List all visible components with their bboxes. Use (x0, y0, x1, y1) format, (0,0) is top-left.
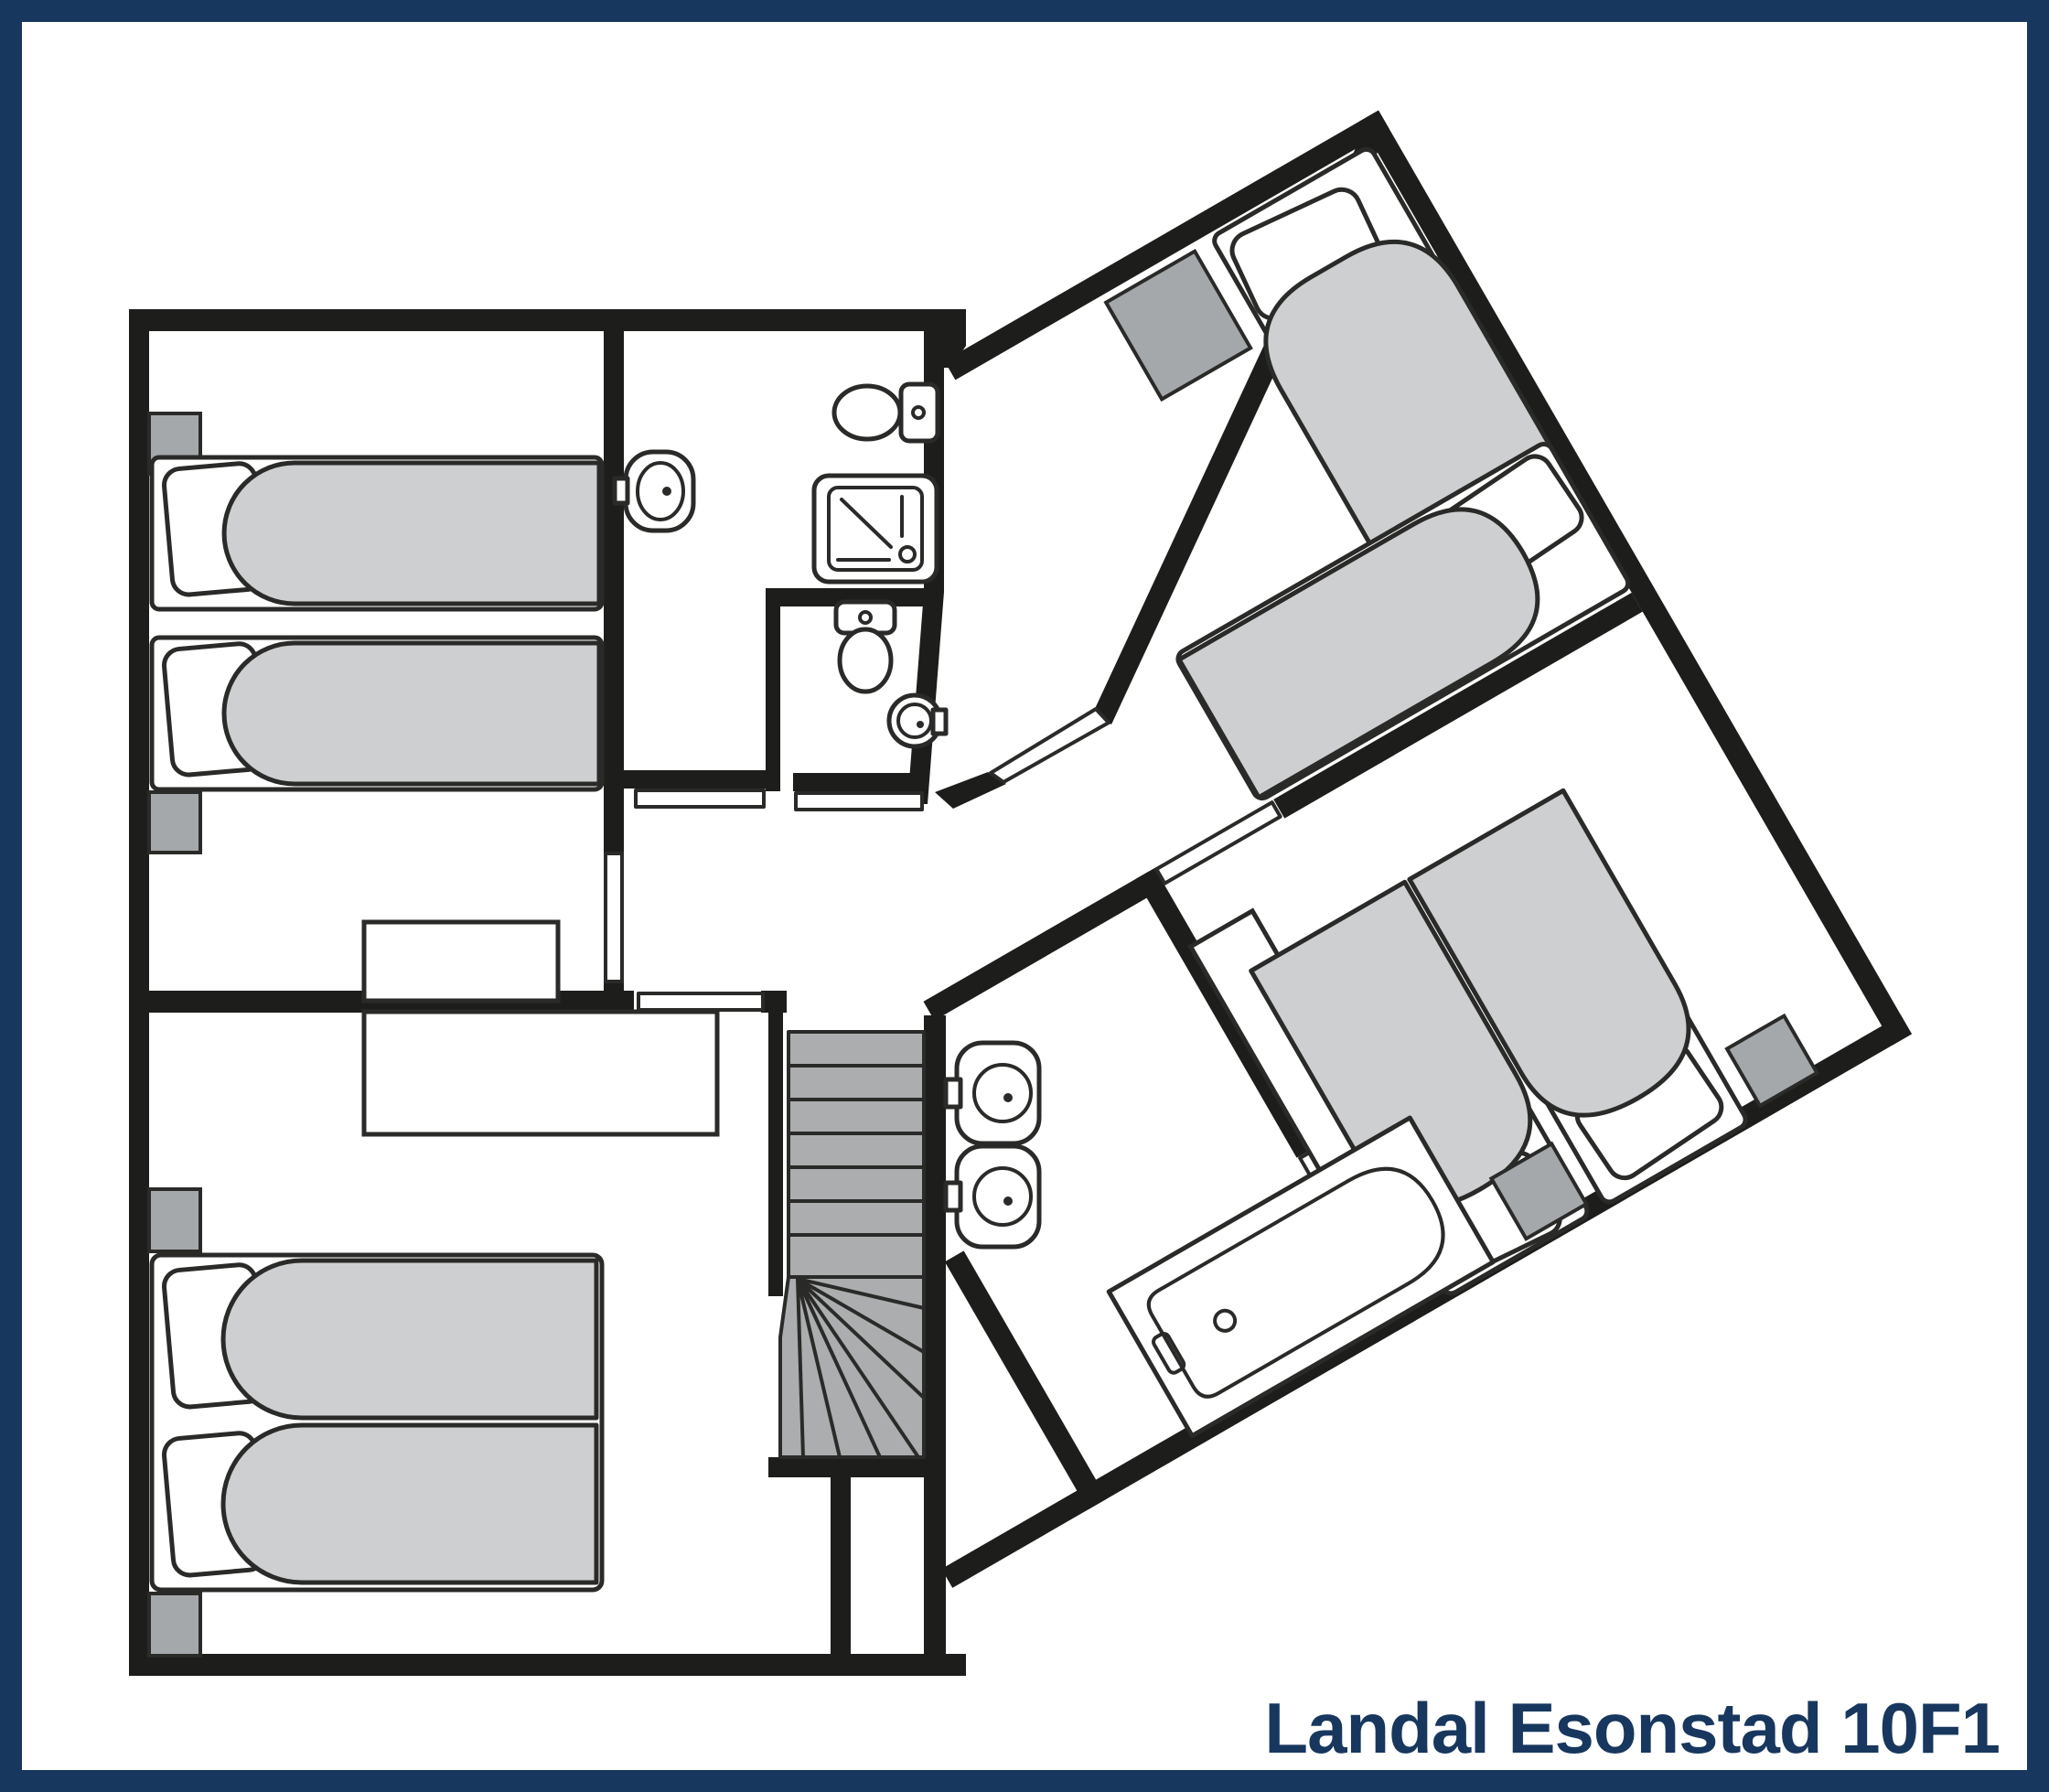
wall-stair-bottom (768, 1457, 946, 1477)
wall-wc-left (766, 588, 780, 791)
cabinet (364, 922, 558, 1001)
sink-icon (889, 695, 946, 746)
bedroom-top-left (149, 413, 602, 1001)
bathtub-icon (1109, 1118, 1493, 1436)
rotated-wing (419, 111, 1912, 1588)
sink-icon (946, 1043, 1039, 1143)
wall-stair-right (924, 1015, 946, 1477)
stair-flight (788, 1032, 924, 1277)
wall-entry-right (924, 1477, 946, 1656)
door-leaf-bedroom3 (991, 709, 1109, 782)
bathroom-right-sinks (946, 1043, 1039, 1247)
nightstand (149, 1593, 200, 1656)
toilet-icon (836, 602, 895, 692)
toilet-icon (834, 384, 938, 441)
door-leaf-wc (796, 793, 922, 810)
floor-plan: Landal Esonstad 10F1 (0, 0, 2049, 1792)
door-leaf-bedroom4 (1156, 802, 1280, 884)
nightstand (149, 1189, 200, 1251)
nightstand (149, 792, 200, 853)
bed (152, 638, 602, 789)
shower-icon (814, 476, 937, 582)
duvet (224, 463, 599, 604)
door-leaf-bedroom2 (638, 993, 763, 1010)
bedroom-bottom-left (149, 1012, 717, 1656)
sink-icon (946, 1146, 1039, 1247)
wall-bedroom2-right-low (831, 1457, 851, 1656)
wall-passage-south (923, 871, 1160, 1020)
double-bed (152, 1255, 602, 1590)
wall-wc-bottom (793, 773, 924, 791)
bathroom-left (615, 384, 938, 582)
wall-bathroom-right-west (945, 1250, 1107, 1509)
door-leaf-bathroom (636, 790, 764, 807)
wall-top (129, 309, 966, 331)
sink-icon (615, 452, 693, 531)
wall-stair-left (768, 1002, 783, 1296)
door-leaf-bedroom1 (606, 853, 622, 982)
duvet (223, 1261, 596, 1418)
wall-left (129, 309, 149, 1676)
duvet (223, 1425, 596, 1583)
bed (152, 457, 602, 609)
wall-bathroom-bottom (619, 770, 766, 789)
duvet (224, 643, 599, 784)
staircase (780, 1032, 924, 1457)
desk (364, 1012, 717, 1134)
title-text: Landal Esonstad 10F1 (1264, 1688, 2000, 1768)
wall-bottom (129, 1654, 966, 1676)
floor-plan-page: Landal Esonstad 10F1 (0, 0, 2049, 1792)
